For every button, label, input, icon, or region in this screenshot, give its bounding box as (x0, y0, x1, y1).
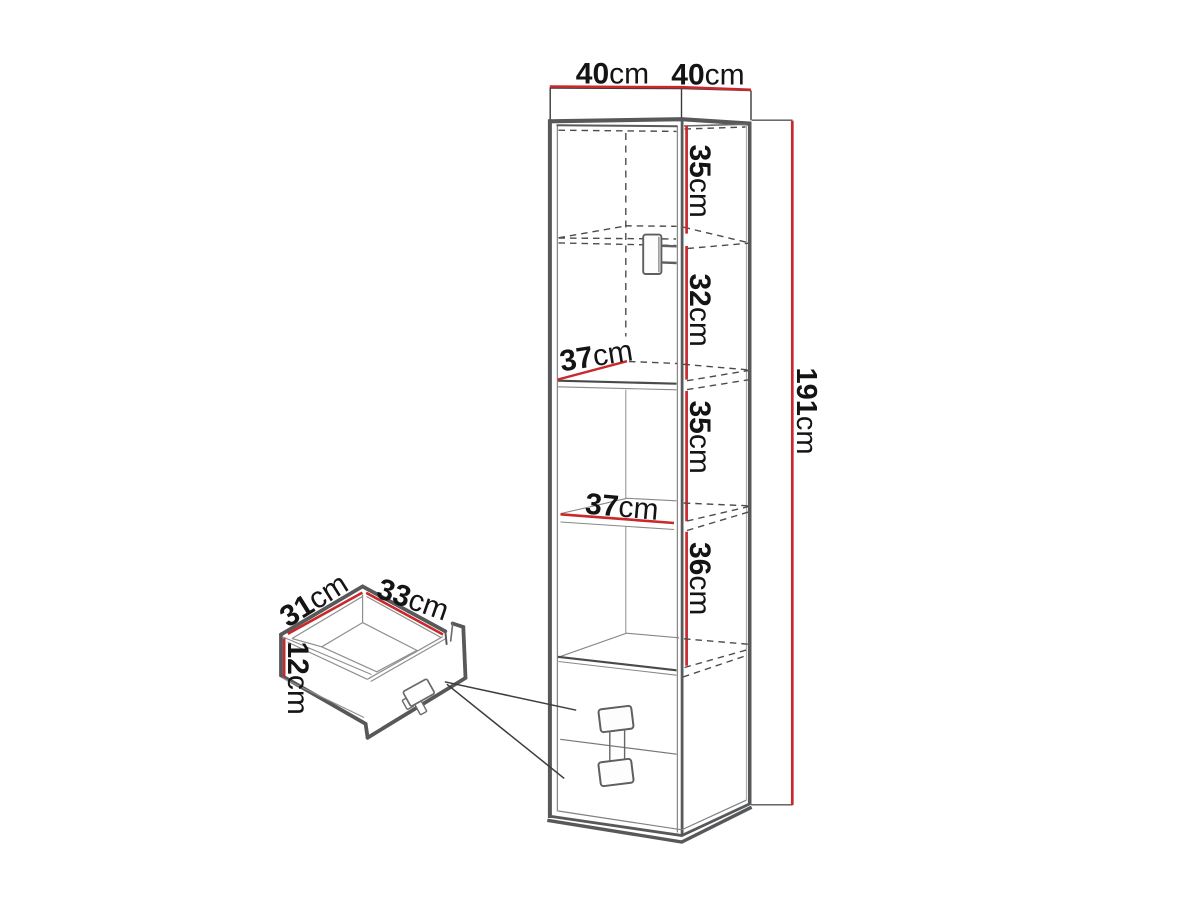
svg-text:35cm: 35cm (683, 145, 716, 218)
svg-text:191cm: 191cm (790, 368, 822, 455)
svg-text:35cm: 35cm (683, 401, 716, 474)
svg-text:12cm: 12cm (281, 642, 314, 715)
svg-text:32cm: 32cm (683, 274, 716, 347)
svg-text:36cm: 36cm (683, 542, 716, 615)
svg-text:40cm: 40cm (671, 59, 744, 92)
svg-text:40cm: 40cm (576, 58, 649, 91)
svg-text:37cm: 37cm (584, 488, 660, 527)
